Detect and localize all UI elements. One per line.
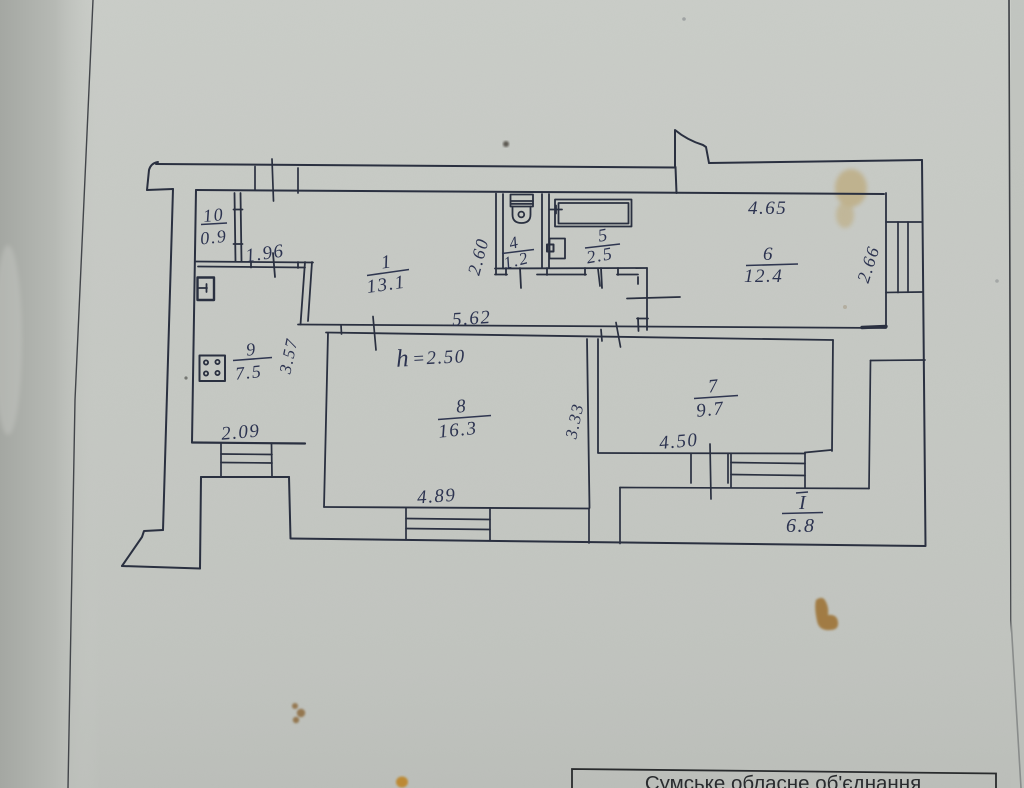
svg-text:I: I [798, 492, 807, 514]
svg-text:9.7: 9.7 [695, 398, 725, 422]
svg-text:7.5: 7.5 [234, 361, 263, 384]
svg-text:4.65: 4.65 [748, 198, 787, 219]
svg-text:4.50: 4.50 [658, 430, 699, 454]
svg-text:16.3: 16.3 [437, 418, 478, 443]
svg-text:Сумське обласне об'єднання: Сумське обласне об'єднання [645, 772, 921, 788]
svg-text:9: 9 [245, 339, 258, 360]
svg-text:5.62: 5.62 [451, 307, 492, 331]
svg-text:6: 6 [763, 244, 774, 265]
svg-text:12.4: 12.4 [744, 266, 783, 287]
svg-text:=2.50: =2.50 [412, 346, 467, 370]
svg-text:2.09: 2.09 [220, 420, 261, 444]
svg-text:h: h [395, 345, 410, 373]
svg-text:6.8: 6.8 [786, 515, 816, 537]
svg-text:8: 8 [455, 396, 468, 418]
svg-text:4.89: 4.89 [416, 485, 457, 509]
svg-text:7: 7 [707, 376, 720, 398]
svg-text:0.9: 0.9 [199, 226, 228, 249]
